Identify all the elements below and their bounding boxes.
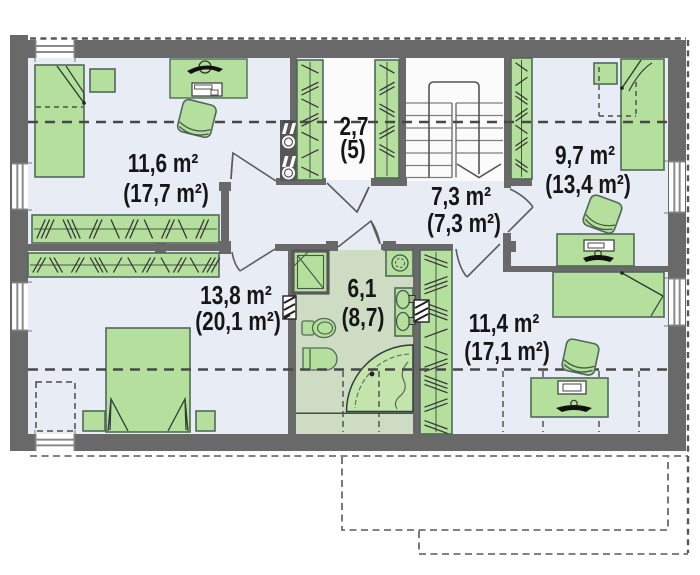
svg-text:6,1: 6,1: [348, 274, 377, 303]
svg-text:11,4 m²: 11,4 m²: [469, 309, 540, 338]
svg-text:11,6 m²: 11,6 m²: [128, 149, 199, 178]
svg-text:(8,7): (8,7): [342, 303, 385, 332]
svg-text:13,8 m²: 13,8 m²: [200, 281, 272, 310]
svg-text:7,3 m²: 7,3 m²: [431, 182, 491, 211]
svg-text:(7,3 m²): (7,3 m²): [427, 209, 501, 238]
svg-text:(17,1 m²): (17,1 m²): [464, 337, 550, 366]
svg-text:(5): (5): [340, 135, 365, 164]
svg-text:(13,4 m²): (13,4 m²): [545, 170, 631, 199]
svg-text:(17,7 m²): (17,7 m²): [123, 179, 209, 208]
svg-text:9,7 m²: 9,7 m²: [555, 141, 615, 170]
svg-text:(20,1 m²): (20,1 m²): [195, 307, 281, 336]
